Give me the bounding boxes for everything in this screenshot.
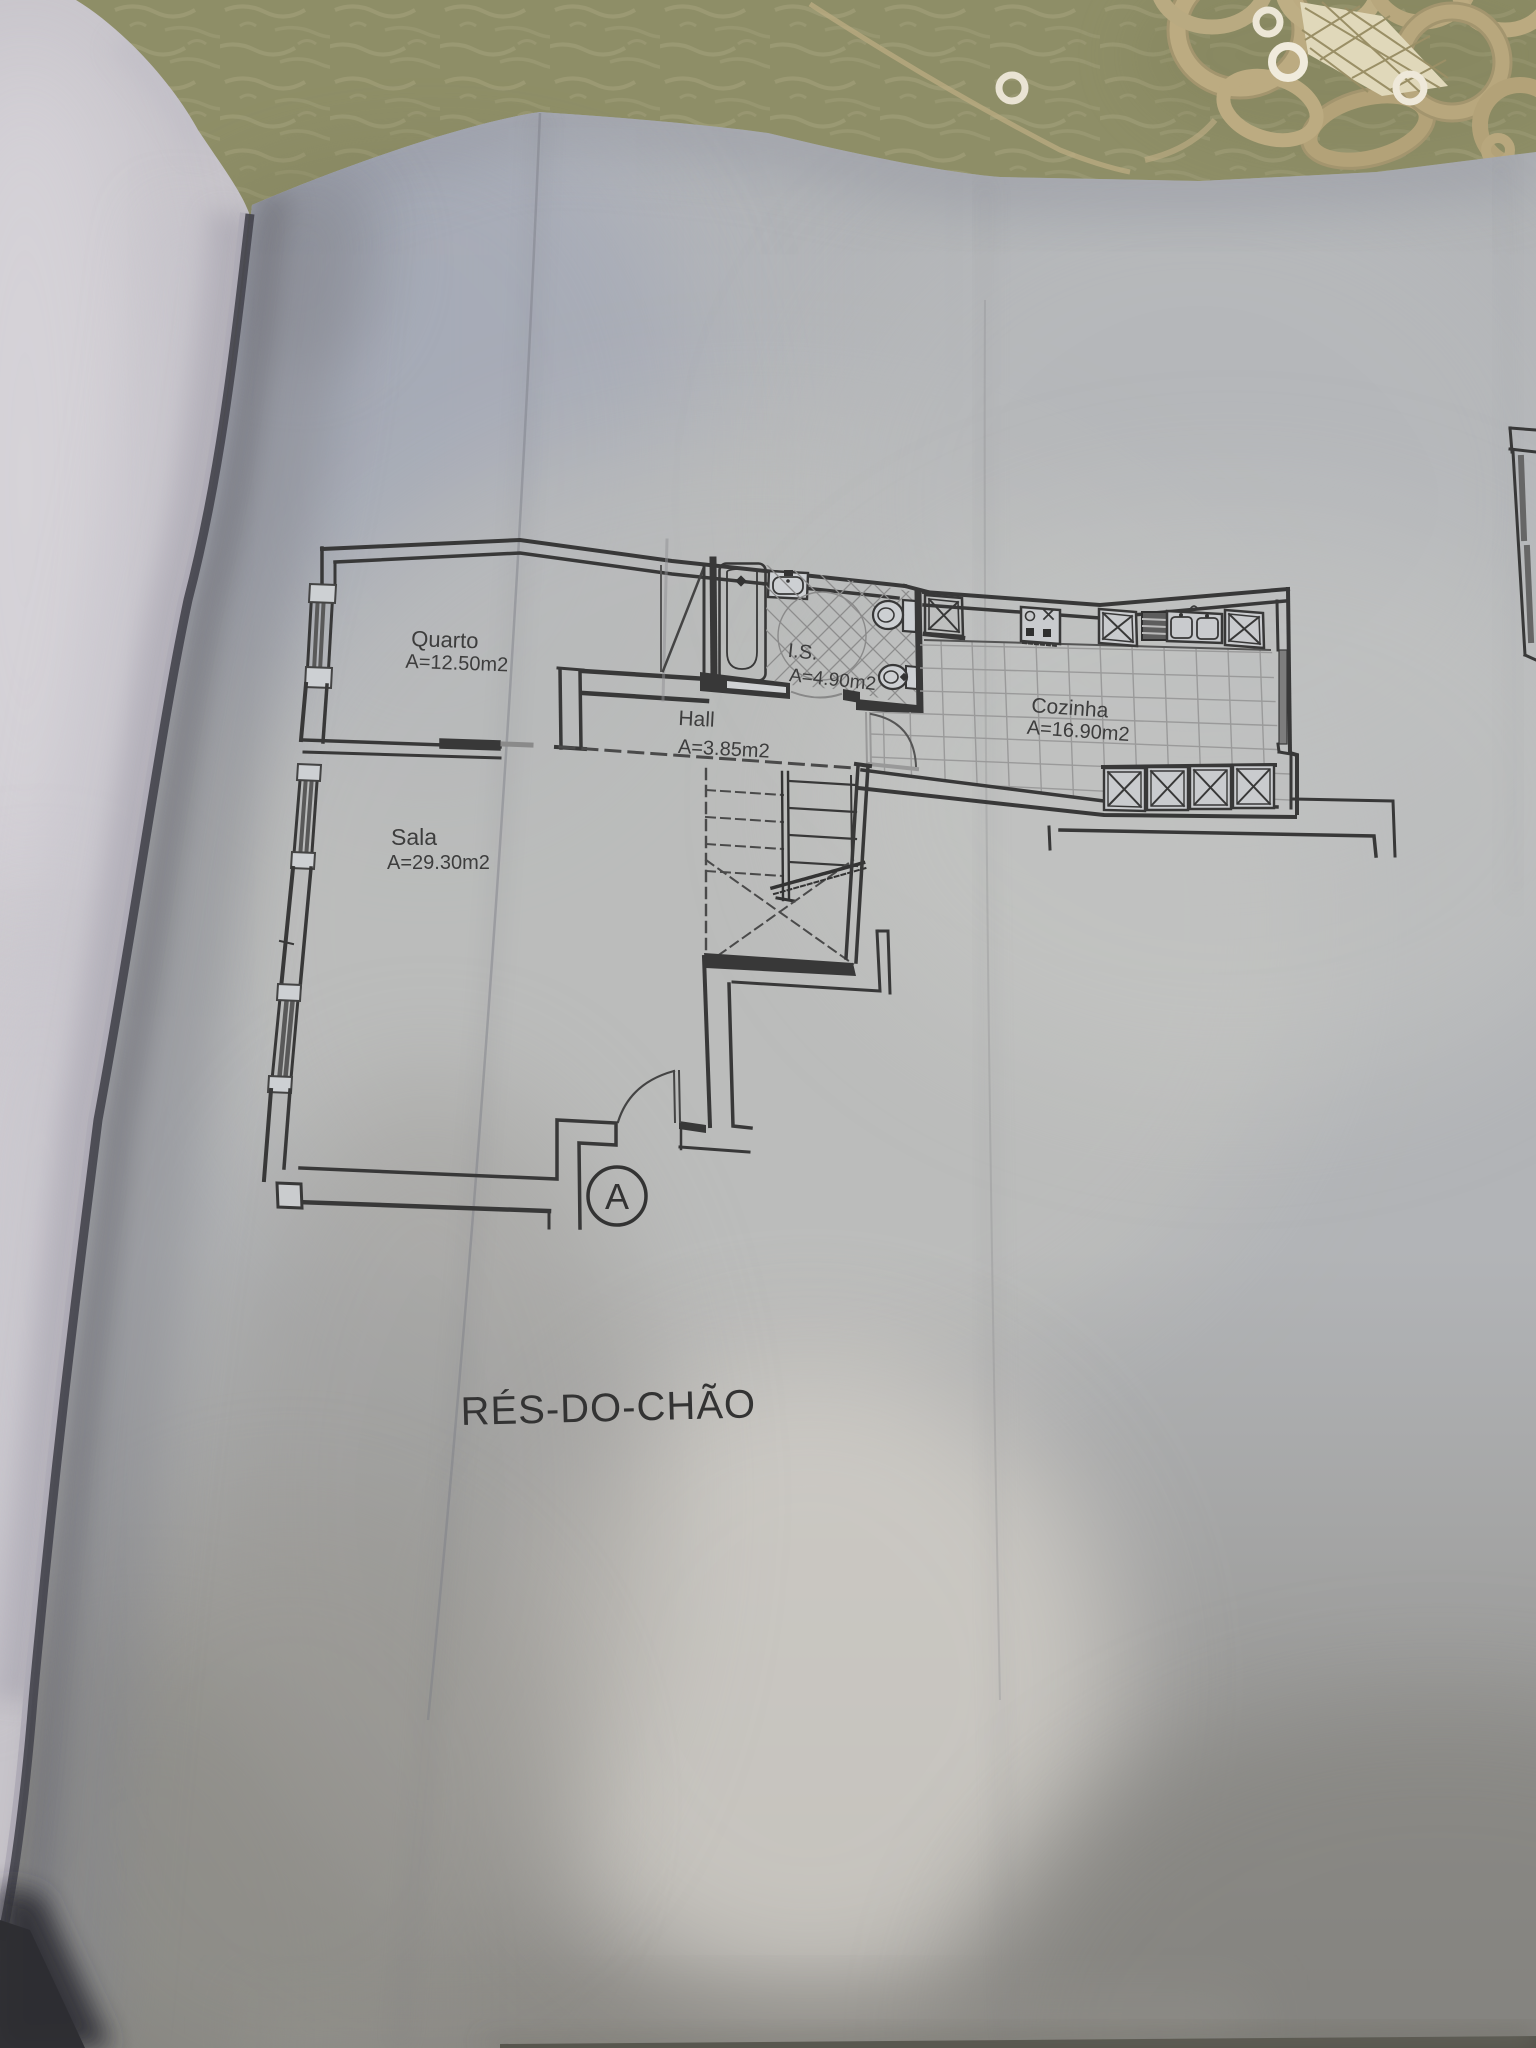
svg-text:Hall: Hall (678, 707, 715, 732)
svg-text:A: A (605, 1176, 629, 1217)
svg-text:RÉS-DO-CHÃO: RÉS-DO-CHÃO (460, 1381, 757, 1434)
svg-text:A=12.50m2: A=12.50m2 (405, 651, 509, 677)
svg-text:I.S.: I.S. (787, 640, 819, 665)
svg-text:Sala: Sala (391, 824, 437, 850)
svg-text:Quarto: Quarto (411, 626, 479, 653)
svg-text:A=29.30m2: A=29.30m2 (387, 852, 490, 874)
